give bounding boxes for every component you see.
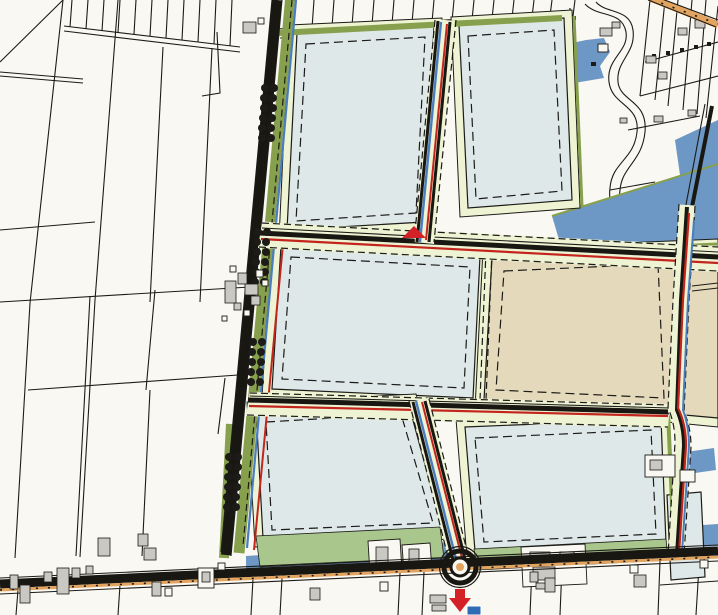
zoning-map <box>0 0 718 615</box>
block-southeast <box>465 419 666 551</box>
route-marker-icon <box>467 606 481 615</box>
block-northwest <box>287 26 434 230</box>
roundabout-icon <box>440 547 481 588</box>
block-center <box>272 246 480 398</box>
zoning-map-canvas[interactable] <box>0 0 718 615</box>
